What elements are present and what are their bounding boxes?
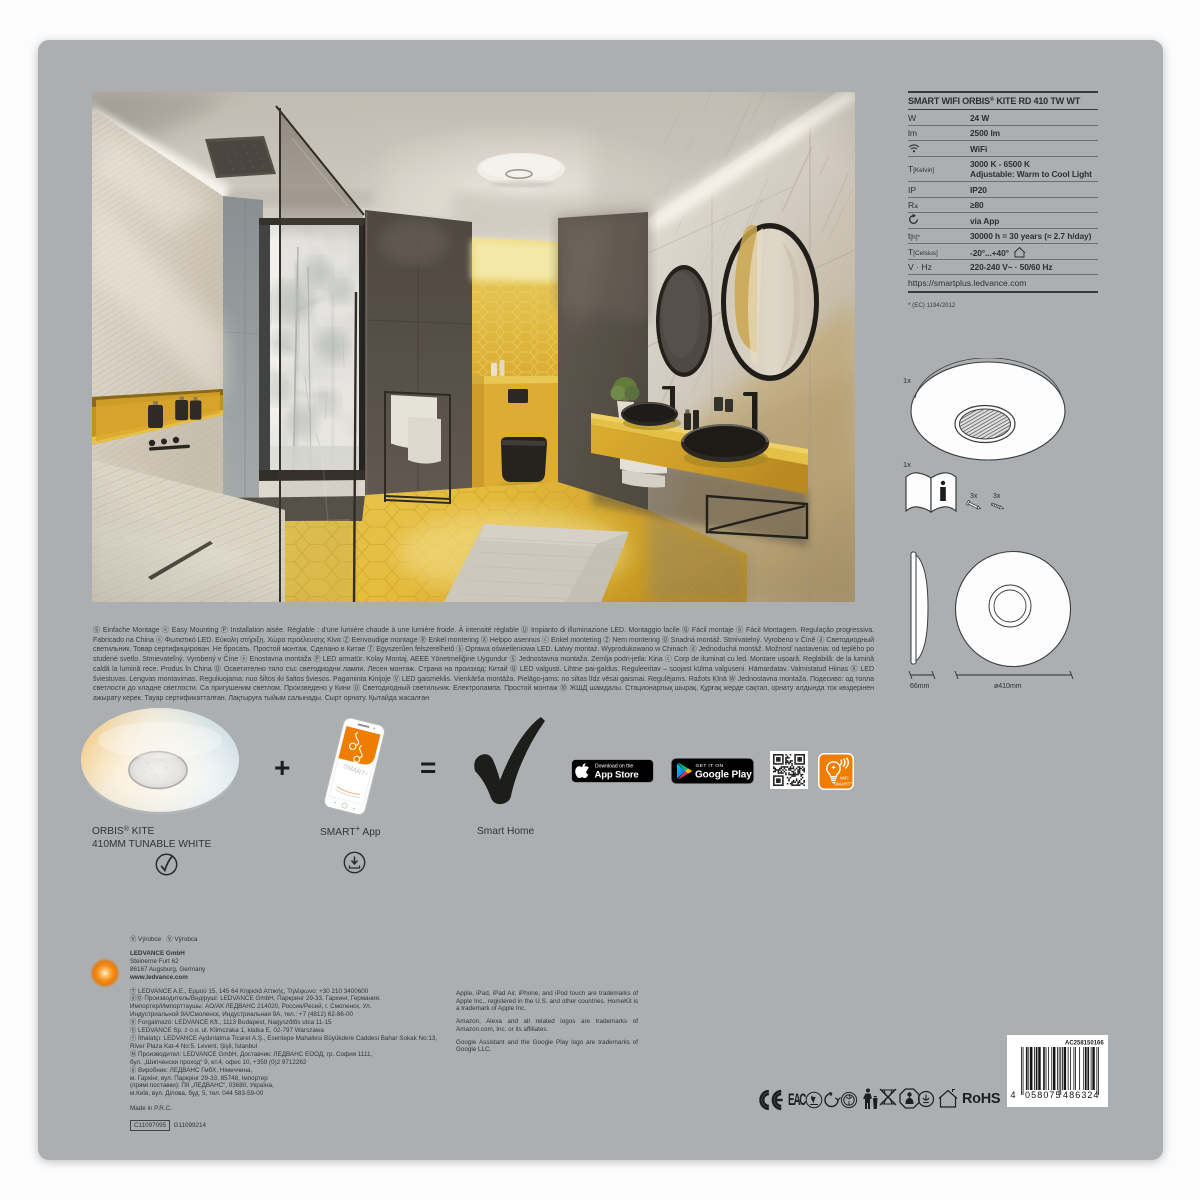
svg-text:EАС: EАС	[788, 1090, 807, 1108]
svg-text:058075: 058075	[1025, 1090, 1062, 1100]
svg-text:ø410mm: ø410mm	[994, 683, 1022, 690]
svg-text:4: 4	[1011, 1090, 1016, 1100]
svg-text:RoHS: RoHS	[962, 1091, 1001, 1107]
svg-text:WiFi: WiFi	[840, 776, 848, 781]
svg-text:3x: 3x	[993, 493, 1001, 500]
svg-text:Google Play: Google Play	[695, 770, 752, 781]
svg-text:486324: 486324	[1063, 1090, 1100, 1100]
svg-text:App Store: App Store	[595, 770, 639, 781]
svg-text:AC258150166: AC258150166	[1065, 1041, 1104, 1047]
svg-text:3x: 3x	[970, 493, 978, 500]
svg-text:GET IT ON: GET IT ON	[696, 763, 724, 769]
svg-text:SMART⁺: SMART⁺	[834, 782, 854, 788]
svg-text:1x: 1x	[903, 376, 911, 385]
svg-text:66mm: 66mm	[910, 683, 930, 690]
svg-text:1x: 1x	[903, 460, 911, 469]
